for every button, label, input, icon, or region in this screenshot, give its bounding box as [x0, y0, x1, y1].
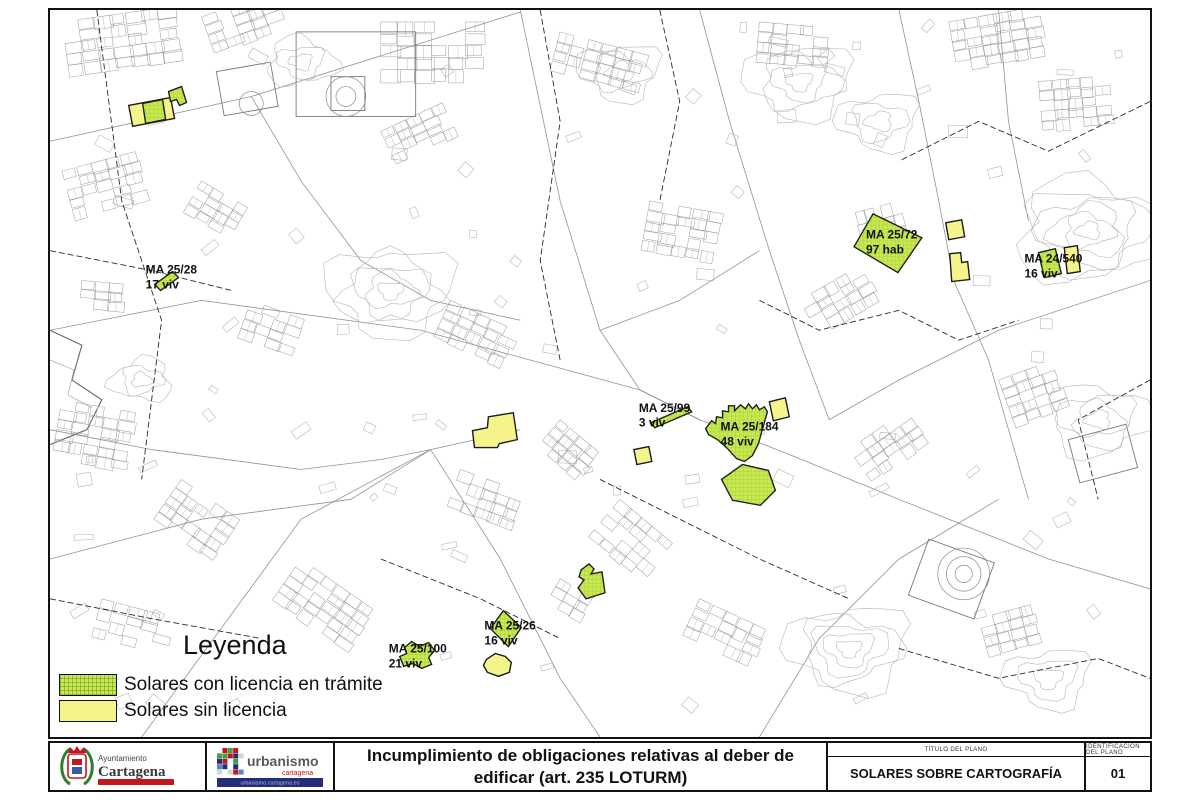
- plan-id-cell: IDENTIFICACIÓN DEL PLANO 01: [1084, 743, 1150, 790]
- urbanismo-cartagena-logo: urbanismo cartagena urbanismo.cartagena.…: [205, 743, 333, 790]
- parcel-sin_licencia: [483, 653, 511, 676]
- svg-text:urbanismo.cartagena.es: urbanismo.cartagena.es: [240, 780, 299, 786]
- parcel-label: MA 25/2817 viv: [146, 263, 198, 292]
- cadastral-map: MA 25/2817 vivMA 25/7297 habMA 24/54016 …: [50, 10, 1150, 737]
- plan-sheet: MA 25/2817 vivMA 25/7297 habMA 24/54016 …: [0, 0, 1200, 800]
- plan-title-value: SOLARES SOBRE CARTOGRAFÍA: [828, 757, 1084, 790]
- parcel-sin_licencia: [472, 413, 517, 448]
- svg-text:Ayuntamiento: Ayuntamiento: [98, 754, 147, 763]
- plan-main-title-line1: Incumplimiento de obligaciones relativas…: [367, 745, 794, 766]
- plan-id-label: IDENTIFICACIÓN DEL PLANO: [1086, 743, 1150, 757]
- parcel-sin_licencia: [950, 253, 970, 282]
- parcel-label: MA 25/10021 viv: [389, 641, 447, 670]
- highlighted-parcels-layer: [129, 87, 1081, 677]
- parcel-label: MA 25/2616 viv: [484, 619, 536, 648]
- plan-main-title-line2: edificar (art. 235 LOTURM): [474, 767, 688, 788]
- ayuntamiento-cartagena-logo: Ayuntamiento Cartagena: [50, 743, 205, 790]
- parcel-hatch-overlay: [143, 100, 166, 124]
- plan-title-label: TÍTULO DEL PLANO: [828, 743, 1084, 757]
- map-frame: MA 25/2817 vivMA 25/7297 habMA 24/54016 …: [48, 8, 1152, 739]
- svg-text:Cartagena: Cartagena: [98, 764, 166, 780]
- basemap-linework: [50, 10, 1150, 737]
- parcel-label: MA 25/18448 viv: [721, 420, 779, 449]
- parcel-sin_licencia: [946, 220, 965, 240]
- urbanismo-mosaic-icon: urbanismo cartagena urbanismo.cartagena.…: [210, 744, 330, 790]
- svg-text:urbanismo: urbanismo: [247, 753, 319, 769]
- parcel-sin_licencia: [769, 398, 789, 421]
- svg-text:cartagena: cartagena: [282, 770, 313, 777]
- plan-title-cell: TÍTULO DEL PLANO SOLARES SOBRE CARTOGRAF…: [826, 743, 1084, 790]
- plan-id-value: 01: [1086, 757, 1150, 790]
- parcel-sin_licencia: [634, 447, 652, 465]
- cartagena-crest-icon: Ayuntamiento Cartagena: [54, 744, 202, 790]
- parcel-labels-layer: MA 25/2817 vivMA 25/7297 habMA 24/54016 …: [146, 228, 1083, 671]
- plan-main-title: Incumplimiento de obligaciones relativas…: [333, 743, 826, 790]
- title-block: Ayuntamiento Cartagena urbanismo cartage…: [48, 741, 1152, 792]
